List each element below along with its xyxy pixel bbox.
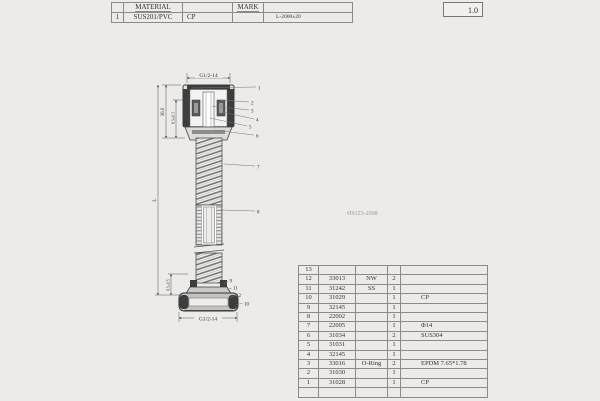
callout-1: 1 — [258, 87, 261, 92]
bom-row: 10310291CP — [299, 294, 488, 303]
bom-row: 8220021 — [299, 313, 488, 322]
bom-row: 2310301 — [299, 369, 488, 378]
drawing-sheet: { "title_block": { "material_label": "MA… — [0, 0, 600, 401]
callout-9: 9 — [230, 280, 233, 285]
dimension-top-thread: G1/2-14 — [187, 71, 230, 83]
hose-drawing: G1/2-14 36.0 8.5±0.5 L 8.5±0.5 G1/2-14 — [140, 60, 312, 345]
bom-row: 1310281CP — [299, 378, 488, 387]
callout-8: 8 — [257, 211, 260, 216]
dimension-length-L: L — [152, 85, 181, 295]
callout-3: 3 — [251, 110, 254, 115]
callout-5: 5 — [249, 126, 252, 131]
hose-upper-segment — [196, 138, 222, 205]
bom-row: 13 — [299, 266, 488, 275]
dim-height-label: 36.0 — [161, 107, 166, 116]
bom-row: 7220051Φ14 — [299, 322, 488, 331]
bottom-connector — [179, 280, 238, 311]
callout-12: 12 — [236, 294, 242, 299]
material-header: MATERIAL — [124, 3, 183, 13]
bom-row: 6310342SUS304 — [299, 331, 488, 340]
callout-11: 11 — [233, 287, 238, 292]
bom-table: 13 1233013NW2 1131242SS1 10310291CP 9321… — [298, 265, 488, 398]
callout-10: 10 — [244, 303, 250, 308]
dim-top-thread-label: G1/2-14 — [199, 73, 218, 79]
finish-value: CP — [183, 13, 233, 23]
title-block-cell — [264, 3, 353, 13]
bom-row — [299, 388, 488, 397]
bom-row: 5310311 — [299, 341, 488, 350]
title-block-cell — [183, 3, 233, 13]
mark-header: MARK — [233, 3, 264, 13]
bom-row: 4321451 — [299, 350, 488, 359]
dim-inner-label: 8.5±0.5 — [171, 112, 176, 124]
bom-row: 1131242SS1 — [299, 284, 488, 293]
callout-4: 4 — [256, 119, 259, 124]
material-value: SUS201/PVC — [124, 13, 183, 23]
hose-cutaway-inner-tube — [196, 205, 222, 245]
title-block-cell — [233, 13, 264, 23]
dim-bottom-offset-label: 8.5±0.5 — [167, 279, 171, 291]
bom-row: 9321451 — [299, 303, 488, 312]
callout-6: 6 — [256, 135, 259, 140]
dimension-height-36: 36.0 — [161, 85, 185, 138]
dim-length-label: L — [152, 198, 158, 202]
dimension-bottom-thread: G1/2-14 — [179, 312, 237, 323]
callout-2: 2 — [251, 102, 254, 107]
length-spec: L-2000±20 — [264, 13, 353, 23]
title-block-cell — [112, 3, 124, 13]
callout-7: 7 — [257, 166, 260, 171]
standard-note: HS123-2008 — [347, 211, 378, 217]
hose-lower-segment — [196, 253, 222, 283]
version-box: 1.0 — [443, 2, 483, 17]
bom-row: 1233013NW2 — [299, 275, 488, 284]
bom-row: 333016O-Ring2EPDM 7.65*1.78 — [299, 360, 488, 369]
dimension-bottom-offset: 8.5±0.5 — [167, 274, 189, 295]
dim-bottom-thread-label: G1/2-14 — [199, 317, 218, 323]
row-number: 1 — [112, 13, 124, 23]
title-block: MATERIAL MARK 1 SUS201/PVC CP L-2000±20 — [111, 2, 353, 23]
